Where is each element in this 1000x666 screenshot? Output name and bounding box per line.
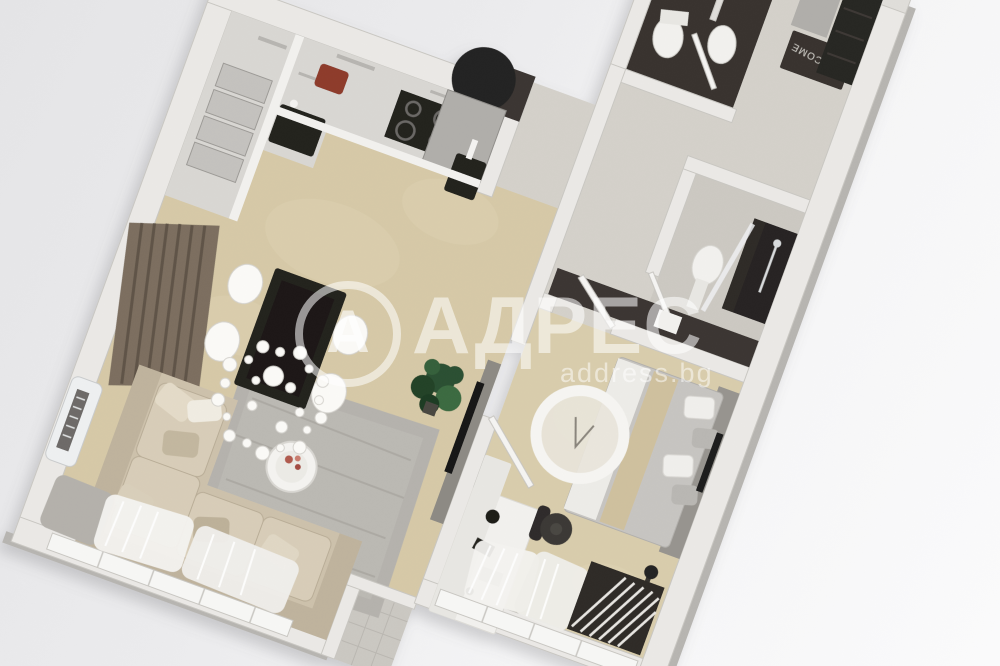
brand-logo-letter: А <box>326 302 369 362</box>
watermark-brand: АДРЕС <box>412 286 703 367</box>
floorplan-photo: WELCOME <box>0 0 1000 666</box>
brand-logo-icon: А <box>295 281 401 387</box>
watermark-domain: address.bg <box>560 360 714 387</box>
